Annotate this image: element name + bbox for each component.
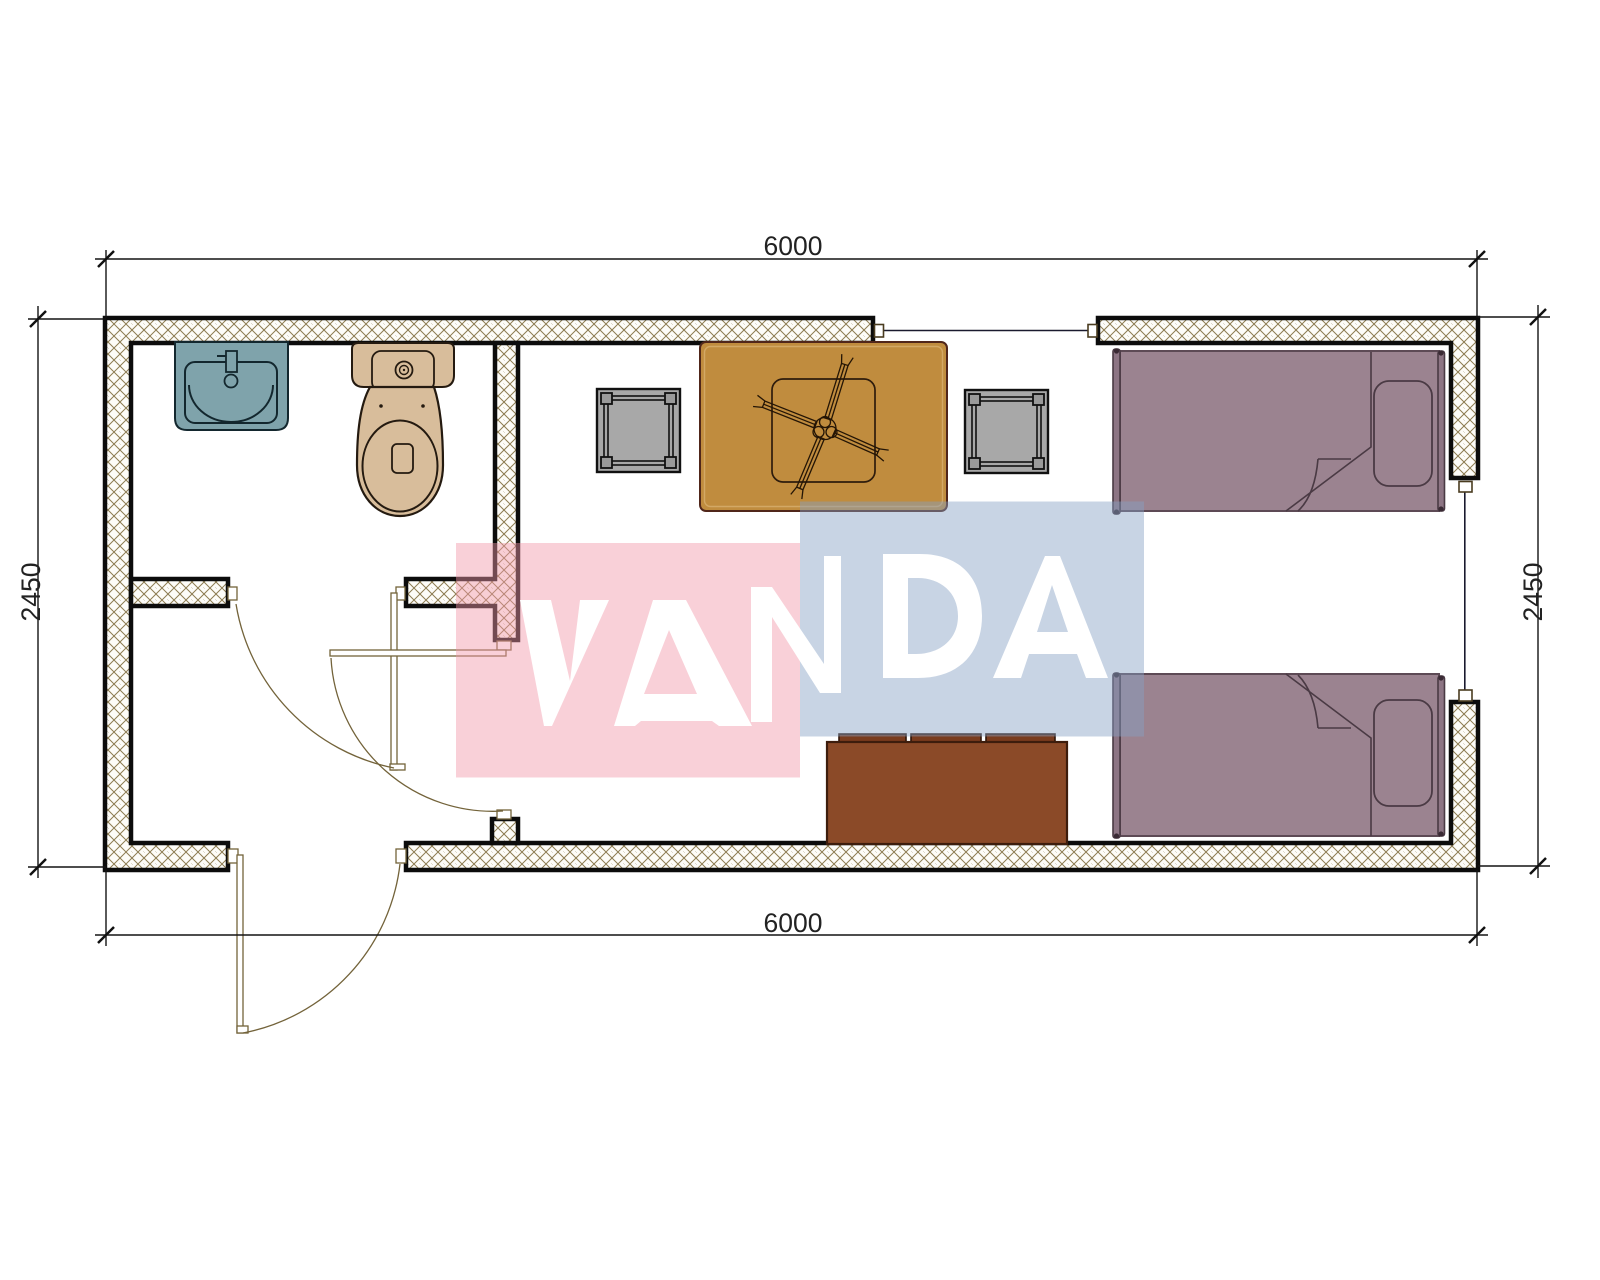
svg-text:6000: 6000	[764, 231, 823, 261]
svg-text:2450: 2450	[1518, 563, 1548, 622]
svg-text:2450: 2450	[16, 563, 46, 622]
svg-text:6000: 6000	[764, 908, 823, 938]
